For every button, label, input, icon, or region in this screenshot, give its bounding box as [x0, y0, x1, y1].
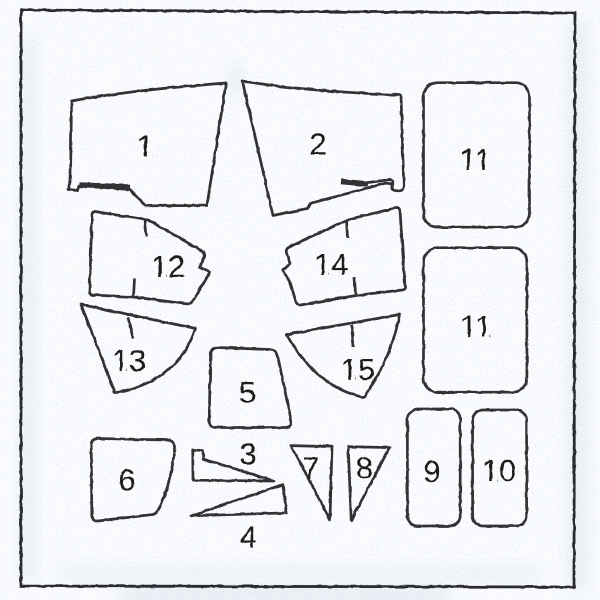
- svg-text:1: 1: [136, 129, 153, 164]
- svg-text:5: 5: [239, 375, 256, 410]
- svg-text:3: 3: [239, 437, 256, 472]
- svg-text:9: 9: [423, 454, 440, 489]
- svg-text:7: 7: [302, 451, 319, 486]
- svg-text:8: 8: [356, 451, 373, 486]
- svg-text:13: 13: [112, 343, 146, 378]
- svg-text:11: 11: [459, 142, 491, 177]
- svg-text:15: 15: [341, 352, 375, 387]
- svg-text:2: 2: [309, 127, 326, 162]
- svg-text:11: 11: [460, 309, 492, 344]
- svg-text:10: 10: [482, 453, 516, 488]
- svg-text:14: 14: [314, 247, 348, 282]
- svg-text:12: 12: [151, 249, 185, 284]
- svg-text:6: 6: [118, 463, 135, 498]
- svg-text:4: 4: [240, 520, 257, 555]
